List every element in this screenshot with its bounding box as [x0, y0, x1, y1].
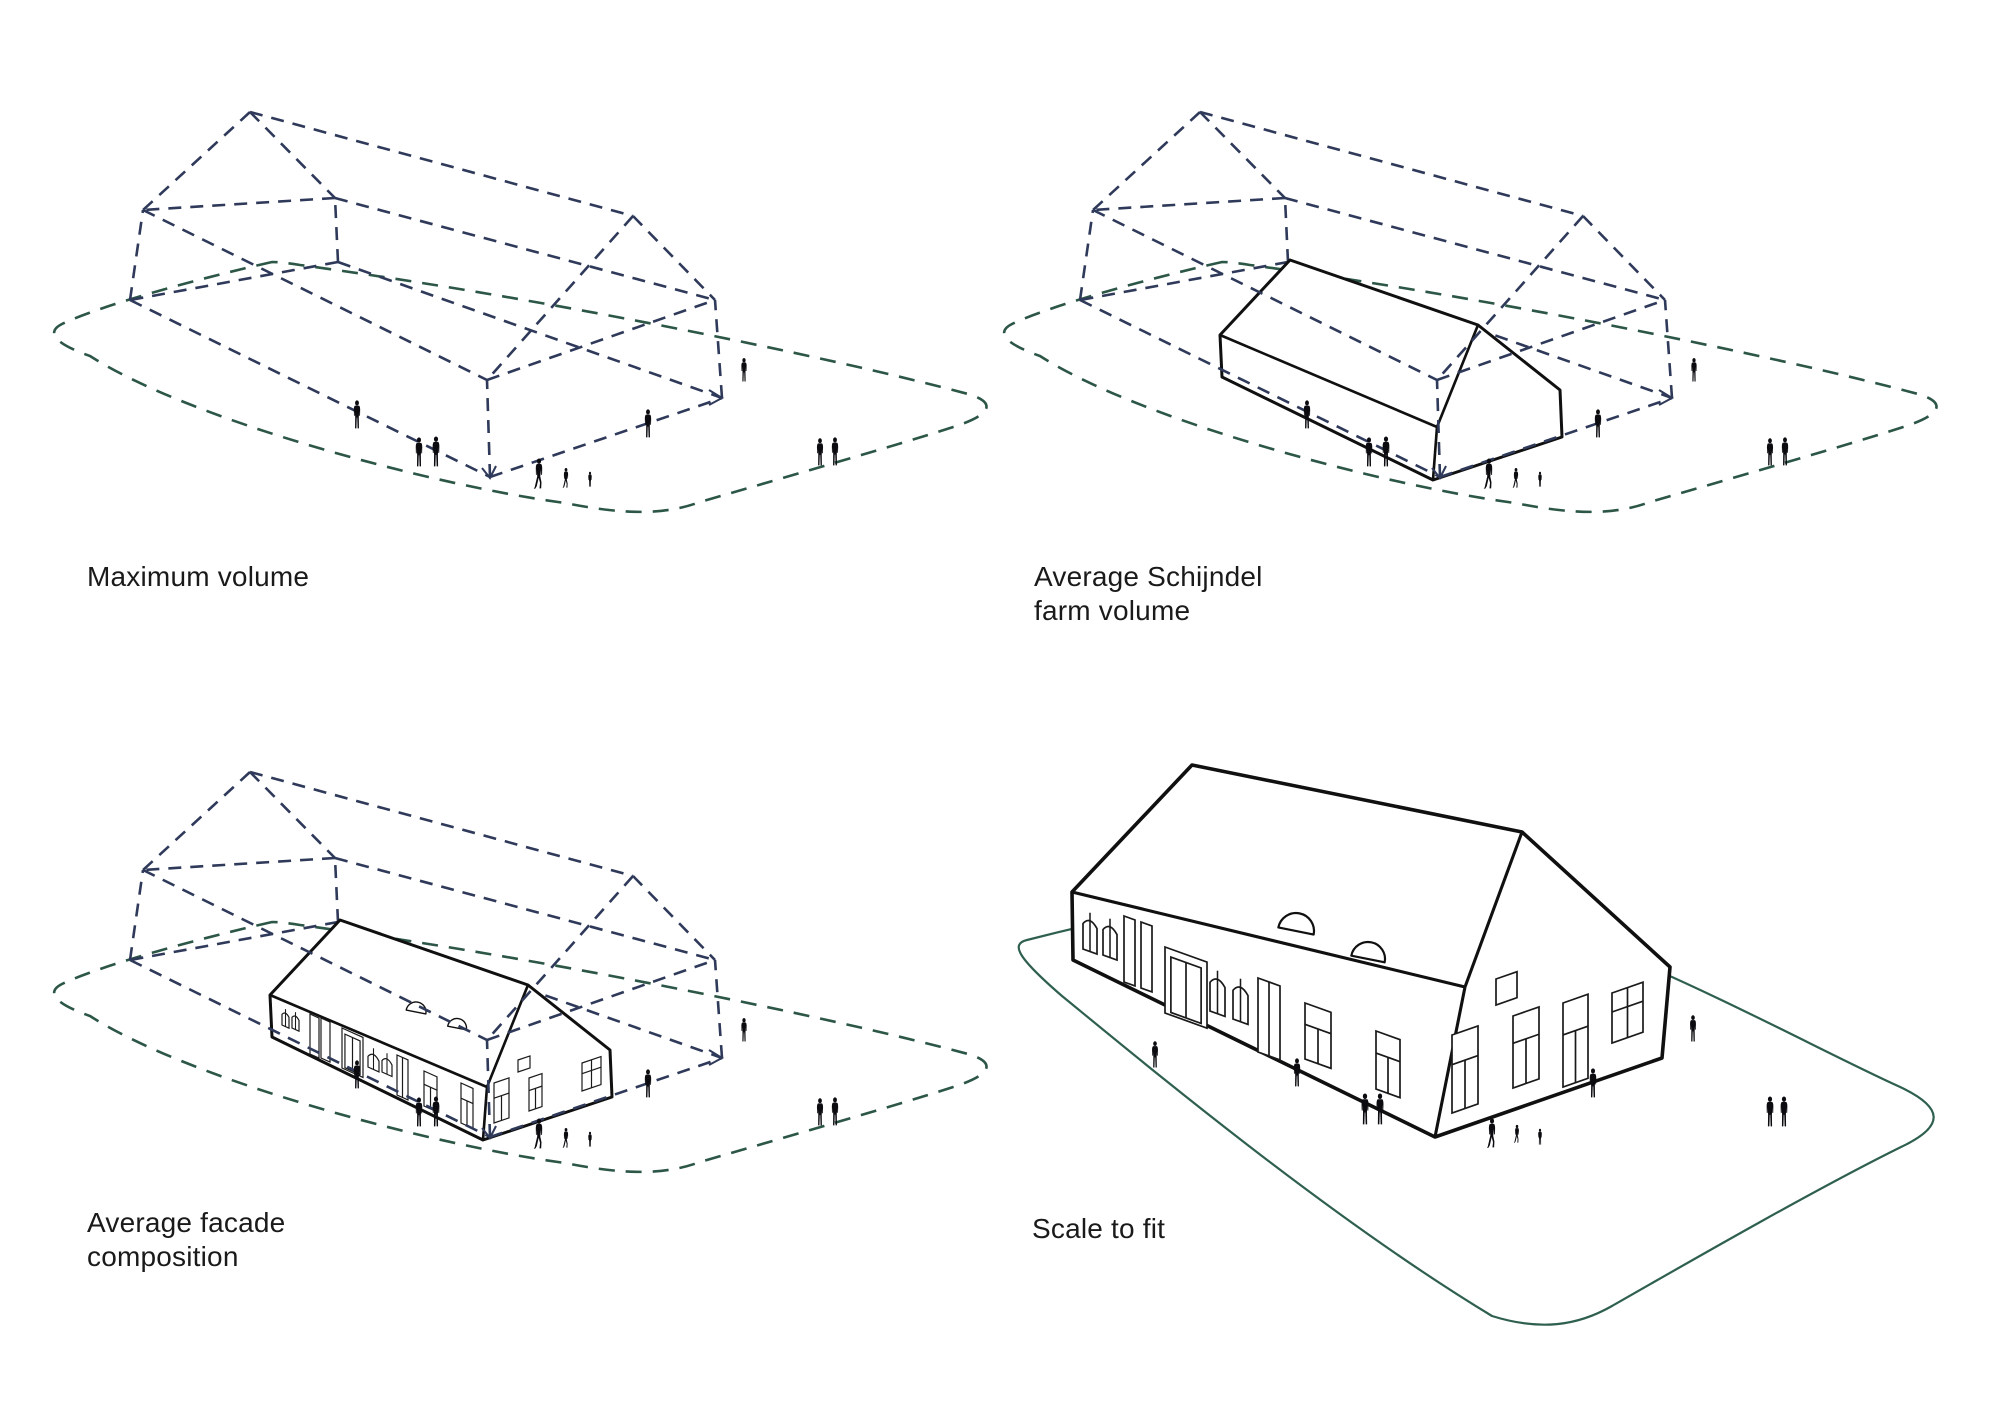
panel-maximum-volume: [54, 112, 986, 512]
person-figure: [1690, 1015, 1696, 1041]
massing-study-diagram-page: Maximum volume Average Schijndel farm vo…: [0, 0, 2000, 1414]
label-maximum-volume: Maximum volume: [87, 560, 309, 594]
person-figure: [433, 436, 440, 466]
person-figure: [1781, 1096, 1788, 1126]
person-figure: [1595, 409, 1601, 437]
person-figure: [1514, 1125, 1519, 1143]
person-figure: [645, 1069, 651, 1097]
person-figure: [817, 1098, 823, 1125]
plot-outline: [54, 262, 986, 512]
maximum-volume-wireframe: [130, 112, 722, 478]
person-figure: [563, 1128, 569, 1148]
label-line: composition: [87, 1240, 285, 1274]
label-line: Average Schijndel: [1034, 560, 1263, 594]
label-line: Scale to fit: [1032, 1212, 1165, 1246]
label-scale-to-fit: Scale to fit: [1032, 1212, 1165, 1246]
person-figure: [1152, 1041, 1158, 1067]
person-figure: [563, 468, 569, 488]
label-line: Maximum volume: [87, 560, 309, 594]
person-figure: [741, 1018, 746, 1041]
label-line: Average facade: [87, 1206, 285, 1240]
person-figure: [1487, 1118, 1495, 1147]
person-figure: [1691, 358, 1696, 381]
person-figure: [1513, 468, 1519, 488]
person-figure: [645, 409, 651, 437]
person-figure: [1767, 1096, 1774, 1126]
label-average-facade-composition: Average facade composition: [87, 1206, 285, 1274]
people-silhouettes: [354, 358, 838, 489]
farm-building-massing: [1220, 260, 1562, 480]
person-figure: [1538, 1129, 1542, 1145]
person-figure: [354, 400, 360, 428]
person-figure: [1767, 438, 1773, 465]
person-figure: [588, 1132, 591, 1147]
panel-average-facade-composition: [54, 772, 986, 1172]
person-figure: [817, 438, 823, 465]
person-figure: [1538, 472, 1541, 487]
farm-building-facade: [270, 920, 612, 1140]
label-line: farm volume: [1034, 594, 1263, 628]
diagram-canvas: [0, 0, 2000, 1414]
label-average-schijndel-farm-volume: Average Schijndel farm volume: [1034, 560, 1263, 628]
panel-average-schijndel-farm-volume: [1004, 112, 1936, 512]
person-figure: [588, 472, 591, 487]
person-figure: [741, 358, 746, 381]
farm-building-scaled: [1072, 765, 1670, 1137]
